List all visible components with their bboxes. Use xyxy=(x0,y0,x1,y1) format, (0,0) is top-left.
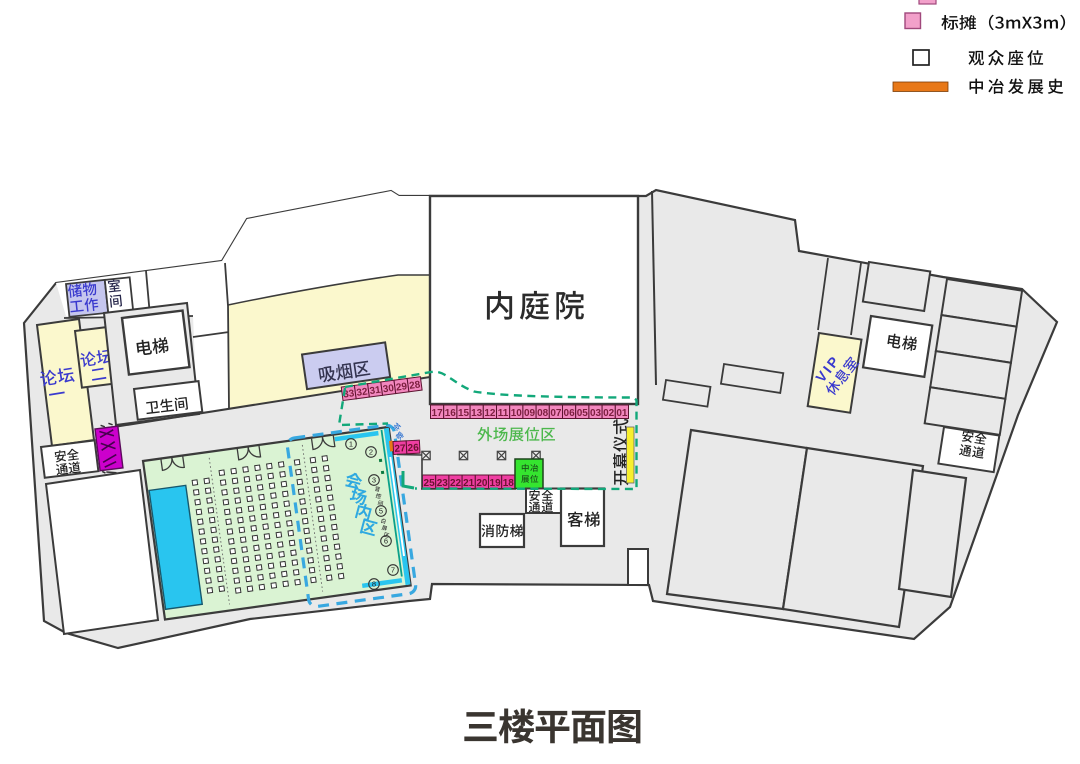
svg-text:23: 23 xyxy=(437,478,449,489)
svg-text:30: 30 xyxy=(382,383,395,395)
svg-text:01: 01 xyxy=(616,408,628,419)
svg-text:12: 12 xyxy=(484,408,496,419)
svg-text:26: 26 xyxy=(407,443,419,455)
svg-text:8: 8 xyxy=(372,580,376,589)
svg-text:08: 08 xyxy=(537,408,549,419)
svg-text:03: 03 xyxy=(590,408,602,419)
svg-text:32: 32 xyxy=(356,386,369,398)
svg-text:2: 2 xyxy=(369,448,373,457)
svg-text:31: 31 xyxy=(369,385,382,397)
svg-text:19: 19 xyxy=(490,478,502,489)
svg-text:15: 15 xyxy=(458,408,470,419)
svg-text:18: 18 xyxy=(503,478,515,489)
svg-text:16: 16 xyxy=(445,408,457,419)
svg-text:28: 28 xyxy=(409,379,422,391)
svg-text:7: 7 xyxy=(391,566,395,575)
svg-text:29: 29 xyxy=(395,381,408,393)
svg-text:02: 02 xyxy=(603,408,615,419)
svg-text:20: 20 xyxy=(476,478,488,489)
svg-text:22: 22 xyxy=(450,478,462,489)
svg-text:17: 17 xyxy=(432,408,444,419)
svg-text:25: 25 xyxy=(424,478,436,489)
svg-text:3: 3 xyxy=(372,476,376,485)
svg-text:07: 07 xyxy=(550,408,562,419)
svg-text:27: 27 xyxy=(394,443,406,455)
svg-text:10: 10 xyxy=(511,408,523,419)
svg-text:5: 5 xyxy=(379,507,383,516)
svg-text:09: 09 xyxy=(524,408,536,419)
svg-text:13: 13 xyxy=(471,408,483,419)
svg-text:05: 05 xyxy=(577,408,589,419)
svg-text:06: 06 xyxy=(564,408,576,419)
svg-text:6: 6 xyxy=(384,537,388,546)
svg-text:1: 1 xyxy=(349,440,353,449)
svg-text:11: 11 xyxy=(498,408,509,419)
svg-text:21: 21 xyxy=(463,478,475,489)
